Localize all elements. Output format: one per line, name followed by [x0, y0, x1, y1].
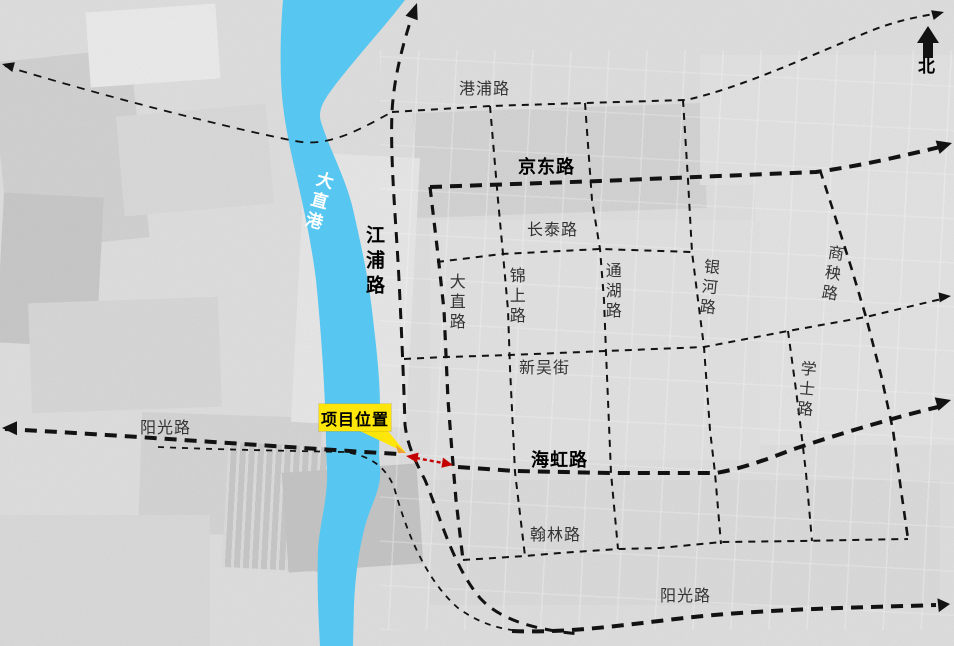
road-label-yangguang-south: 阳光路: [660, 589, 711, 606]
north-compass-label: 北: [918, 58, 936, 76]
road-label-changtai: 长泰路: [527, 223, 578, 240]
road-label-gangpu: 港浦路: [459, 82, 510, 99]
road-label-tonghu: 通湖路: [602, 262, 619, 322]
road-label-dazhi: 大直路: [446, 273, 463, 333]
project-location-map: 港浦路 京东路 长泰路 新吴街 海虹路 翰林路 阳光路 阳光路 大直路 锦上路 …: [0, 0, 954, 646]
road-label-jingdong: 京东路: [518, 158, 575, 177]
road-label-jiangpu: 江浦路: [363, 225, 383, 300]
road-label-jinshang: 锦上路: [506, 267, 523, 327]
road-label-yangguang-west: 阳光路: [140, 421, 191, 438]
project-location-callout: 项目位置: [319, 404, 391, 431]
road-label-xinwu: 新吴街: [519, 361, 570, 378]
road-label-haihong: 海虹路: [531, 451, 588, 470]
road-label-hanlin: 翰林路: [530, 528, 581, 545]
